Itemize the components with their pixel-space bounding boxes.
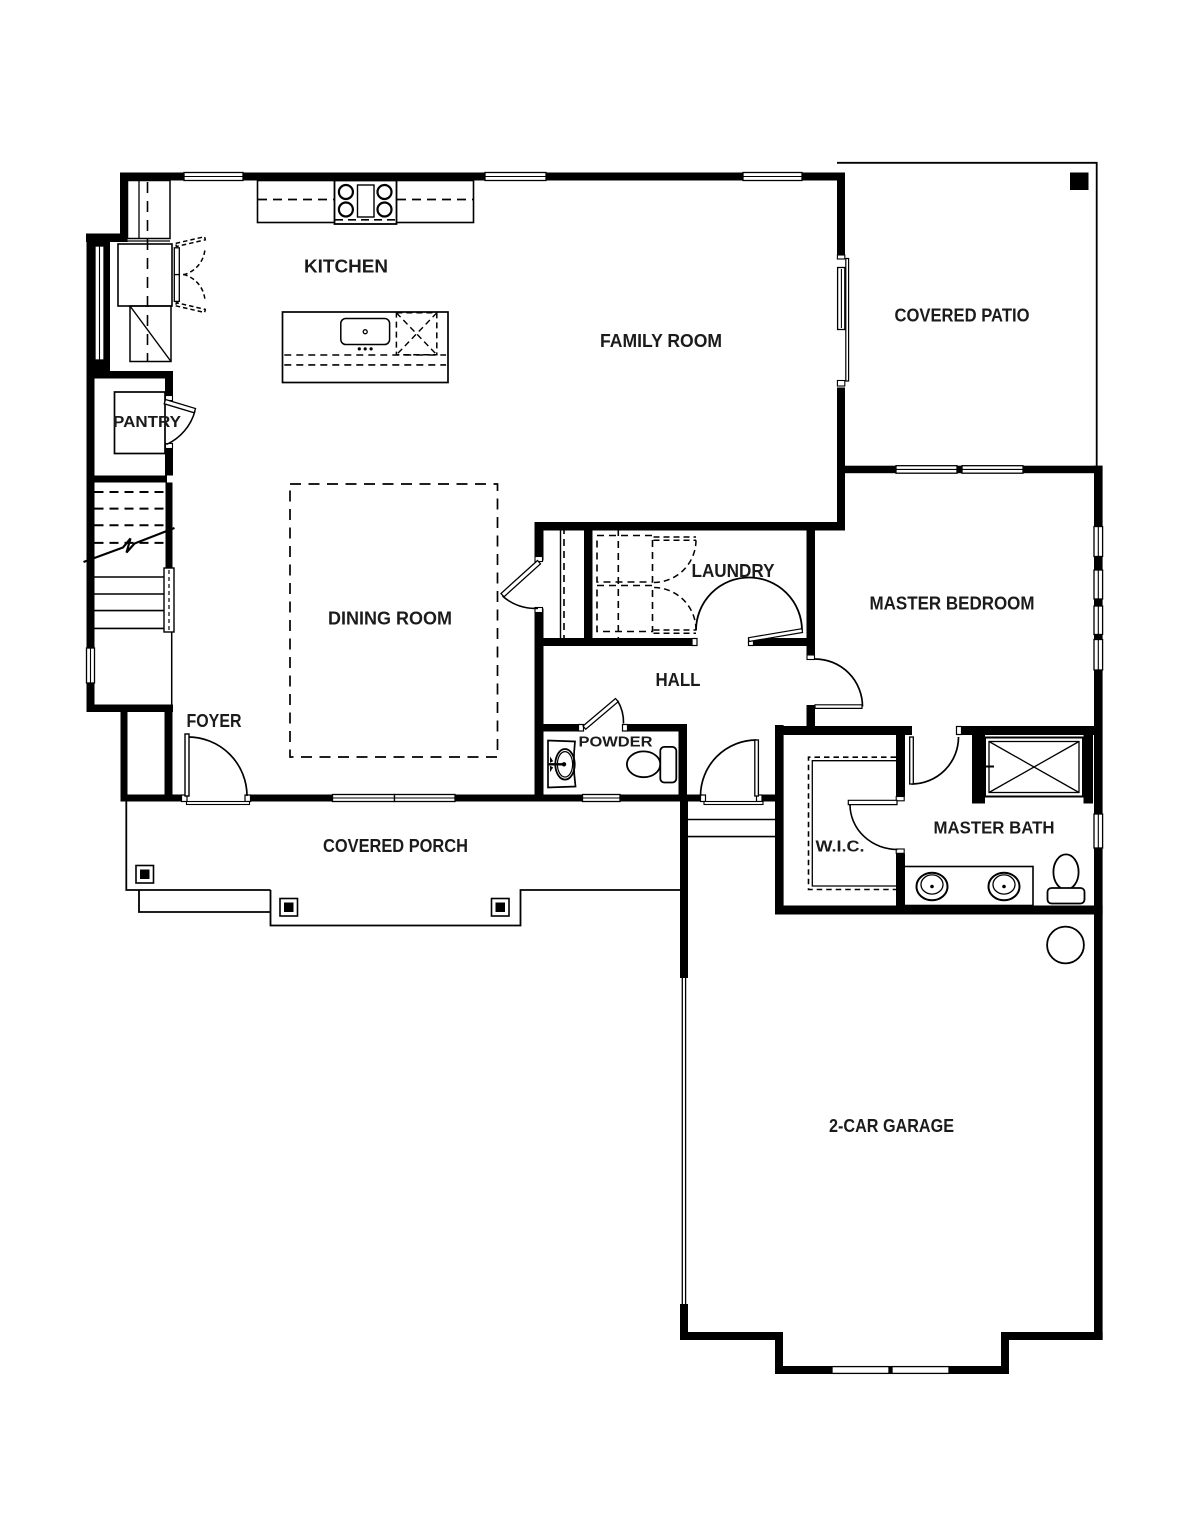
svg-text:POWDER: POWDER xyxy=(579,734,653,751)
svg-text:PANTRY: PANTRY xyxy=(113,414,181,431)
svg-text:DINING ROOM: DINING ROOM xyxy=(328,609,452,629)
svg-text:FOYER: FOYER xyxy=(187,711,242,731)
svg-text:FAMILY ROOM: FAMILY ROOM xyxy=(600,331,722,351)
svg-text:2-CAR GARAGE: 2-CAR GARAGE xyxy=(829,1116,954,1136)
svg-text:W.I.C.: W.I.C. xyxy=(816,839,865,856)
svg-text:MASTER BEDROOM: MASTER BEDROOM xyxy=(870,594,1035,614)
svg-text:LAUNDRY: LAUNDRY xyxy=(692,561,775,581)
svg-text:COVERED PATIO: COVERED PATIO xyxy=(895,306,1030,326)
svg-text:MASTER BATH: MASTER BATH xyxy=(934,818,1055,838)
svg-text:COVERED PORCH: COVERED PORCH xyxy=(323,836,468,856)
svg-text:HALL: HALL xyxy=(656,670,701,690)
svg-text:KITCHEN: KITCHEN xyxy=(304,257,388,277)
